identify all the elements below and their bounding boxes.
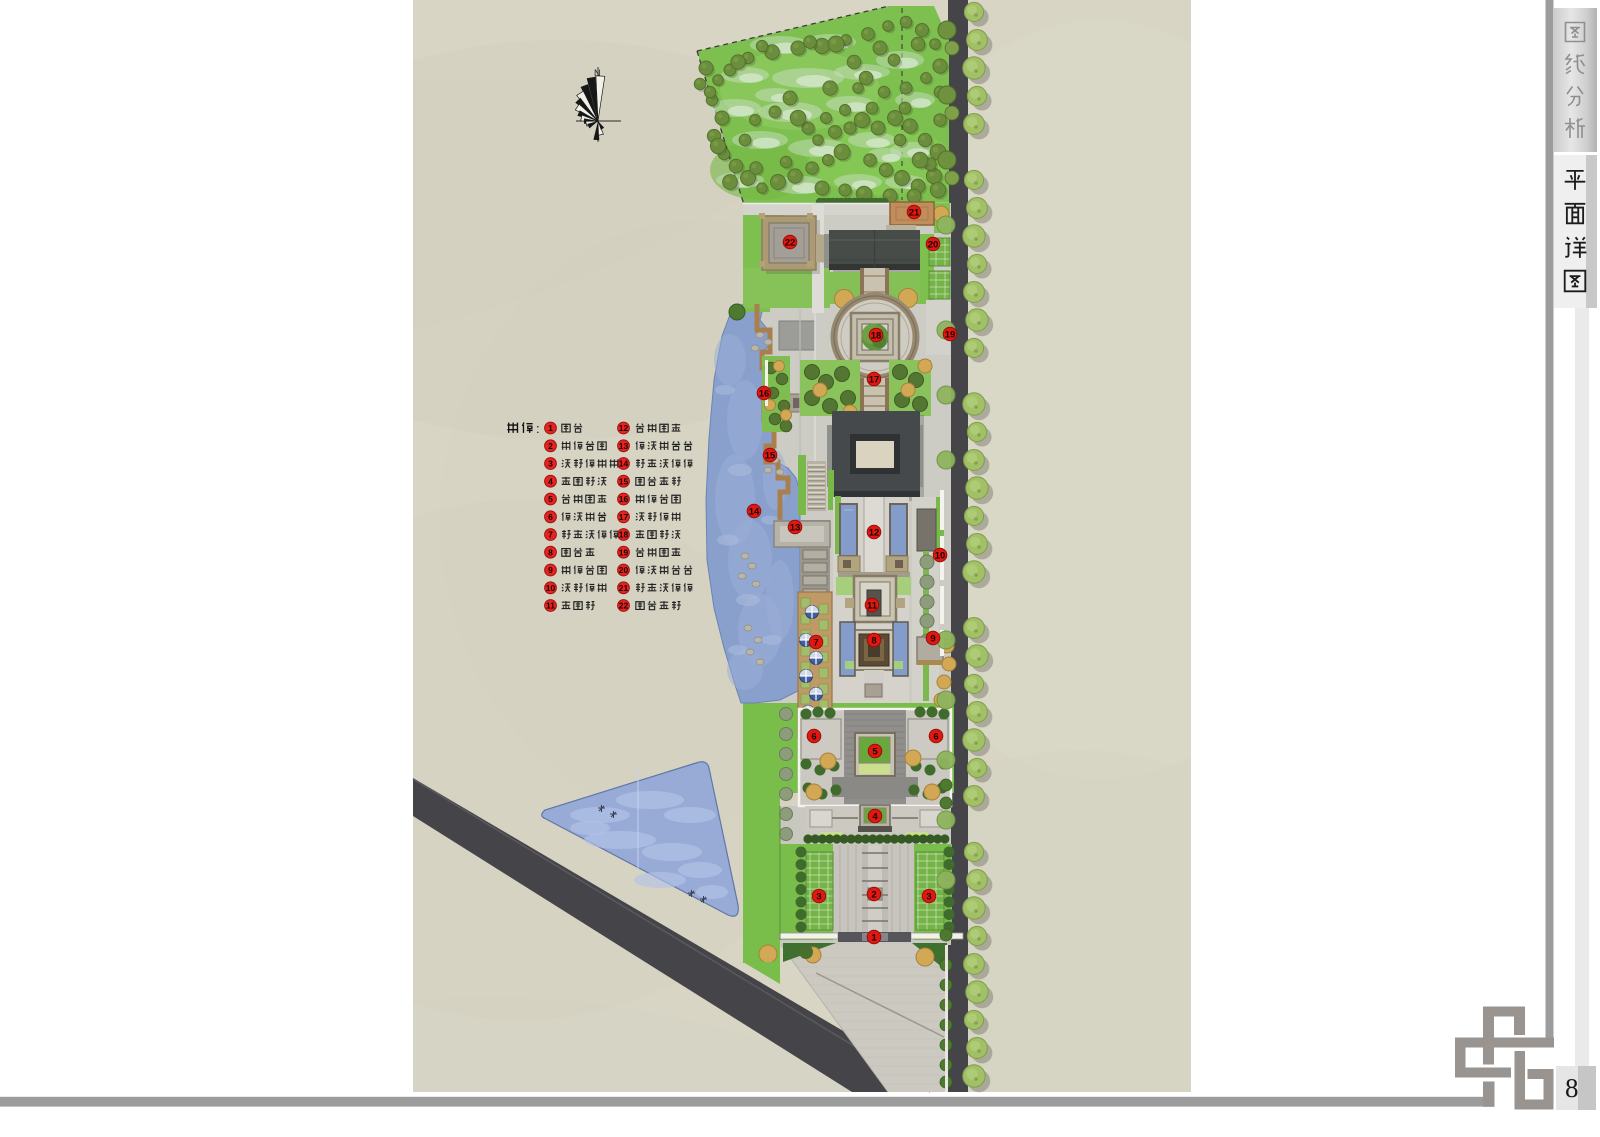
svg-text:11: 11 xyxy=(867,600,878,611)
svg-text:17: 17 xyxy=(619,512,629,522)
svg-text:18: 18 xyxy=(871,330,882,341)
svg-text:22: 22 xyxy=(619,601,629,611)
svg-text:21: 21 xyxy=(619,583,629,593)
svg-text:14: 14 xyxy=(619,459,629,469)
svg-text:14: 14 xyxy=(749,506,760,517)
svg-text:19: 19 xyxy=(945,329,956,340)
svg-text:1: 1 xyxy=(548,423,553,433)
svg-text:15: 15 xyxy=(765,450,776,461)
svg-text:2: 2 xyxy=(548,441,553,451)
svg-text:13: 13 xyxy=(619,441,629,451)
svg-text:4: 4 xyxy=(548,476,553,486)
svg-text:20: 20 xyxy=(928,239,939,250)
svg-text:8: 8 xyxy=(1565,1073,1579,1103)
svg-text:20: 20 xyxy=(619,565,629,575)
svg-text:18: 18 xyxy=(619,530,629,540)
svg-text:12: 12 xyxy=(869,527,880,538)
svg-text:16: 16 xyxy=(619,494,629,504)
svg-text:6: 6 xyxy=(811,731,816,742)
svg-text:3: 3 xyxy=(548,459,553,469)
svg-text:8: 8 xyxy=(548,547,553,557)
svg-text:3: 3 xyxy=(926,891,931,902)
svg-text:10: 10 xyxy=(935,550,946,561)
svg-text:19: 19 xyxy=(619,547,629,557)
svg-text:21: 21 xyxy=(909,207,920,218)
svg-text:8: 8 xyxy=(871,635,876,646)
svg-text:17: 17 xyxy=(869,374,880,385)
svg-text:10: 10 xyxy=(546,583,556,593)
svg-text:11: 11 xyxy=(546,601,555,611)
svg-text:2: 2 xyxy=(871,889,876,900)
svg-text:9: 9 xyxy=(930,633,935,644)
svg-text:7: 7 xyxy=(813,637,818,648)
svg-text:12: 12 xyxy=(619,423,629,433)
svg-text:4: 4 xyxy=(872,811,878,822)
svg-text:15: 15 xyxy=(619,476,629,486)
svg-text:16: 16 xyxy=(759,388,770,399)
svg-text::: : xyxy=(536,421,540,436)
svg-text:5: 5 xyxy=(872,746,878,757)
svg-text:22: 22 xyxy=(785,237,796,248)
svg-text:9: 9 xyxy=(548,565,553,575)
svg-text:6: 6 xyxy=(548,512,553,522)
svg-text:5: 5 xyxy=(548,494,553,504)
svg-text:1: 1 xyxy=(871,932,877,943)
svg-text:3: 3 xyxy=(816,891,821,902)
svg-text:7: 7 xyxy=(548,530,553,540)
svg-text:13: 13 xyxy=(790,522,801,533)
svg-text:6: 6 xyxy=(933,731,938,742)
